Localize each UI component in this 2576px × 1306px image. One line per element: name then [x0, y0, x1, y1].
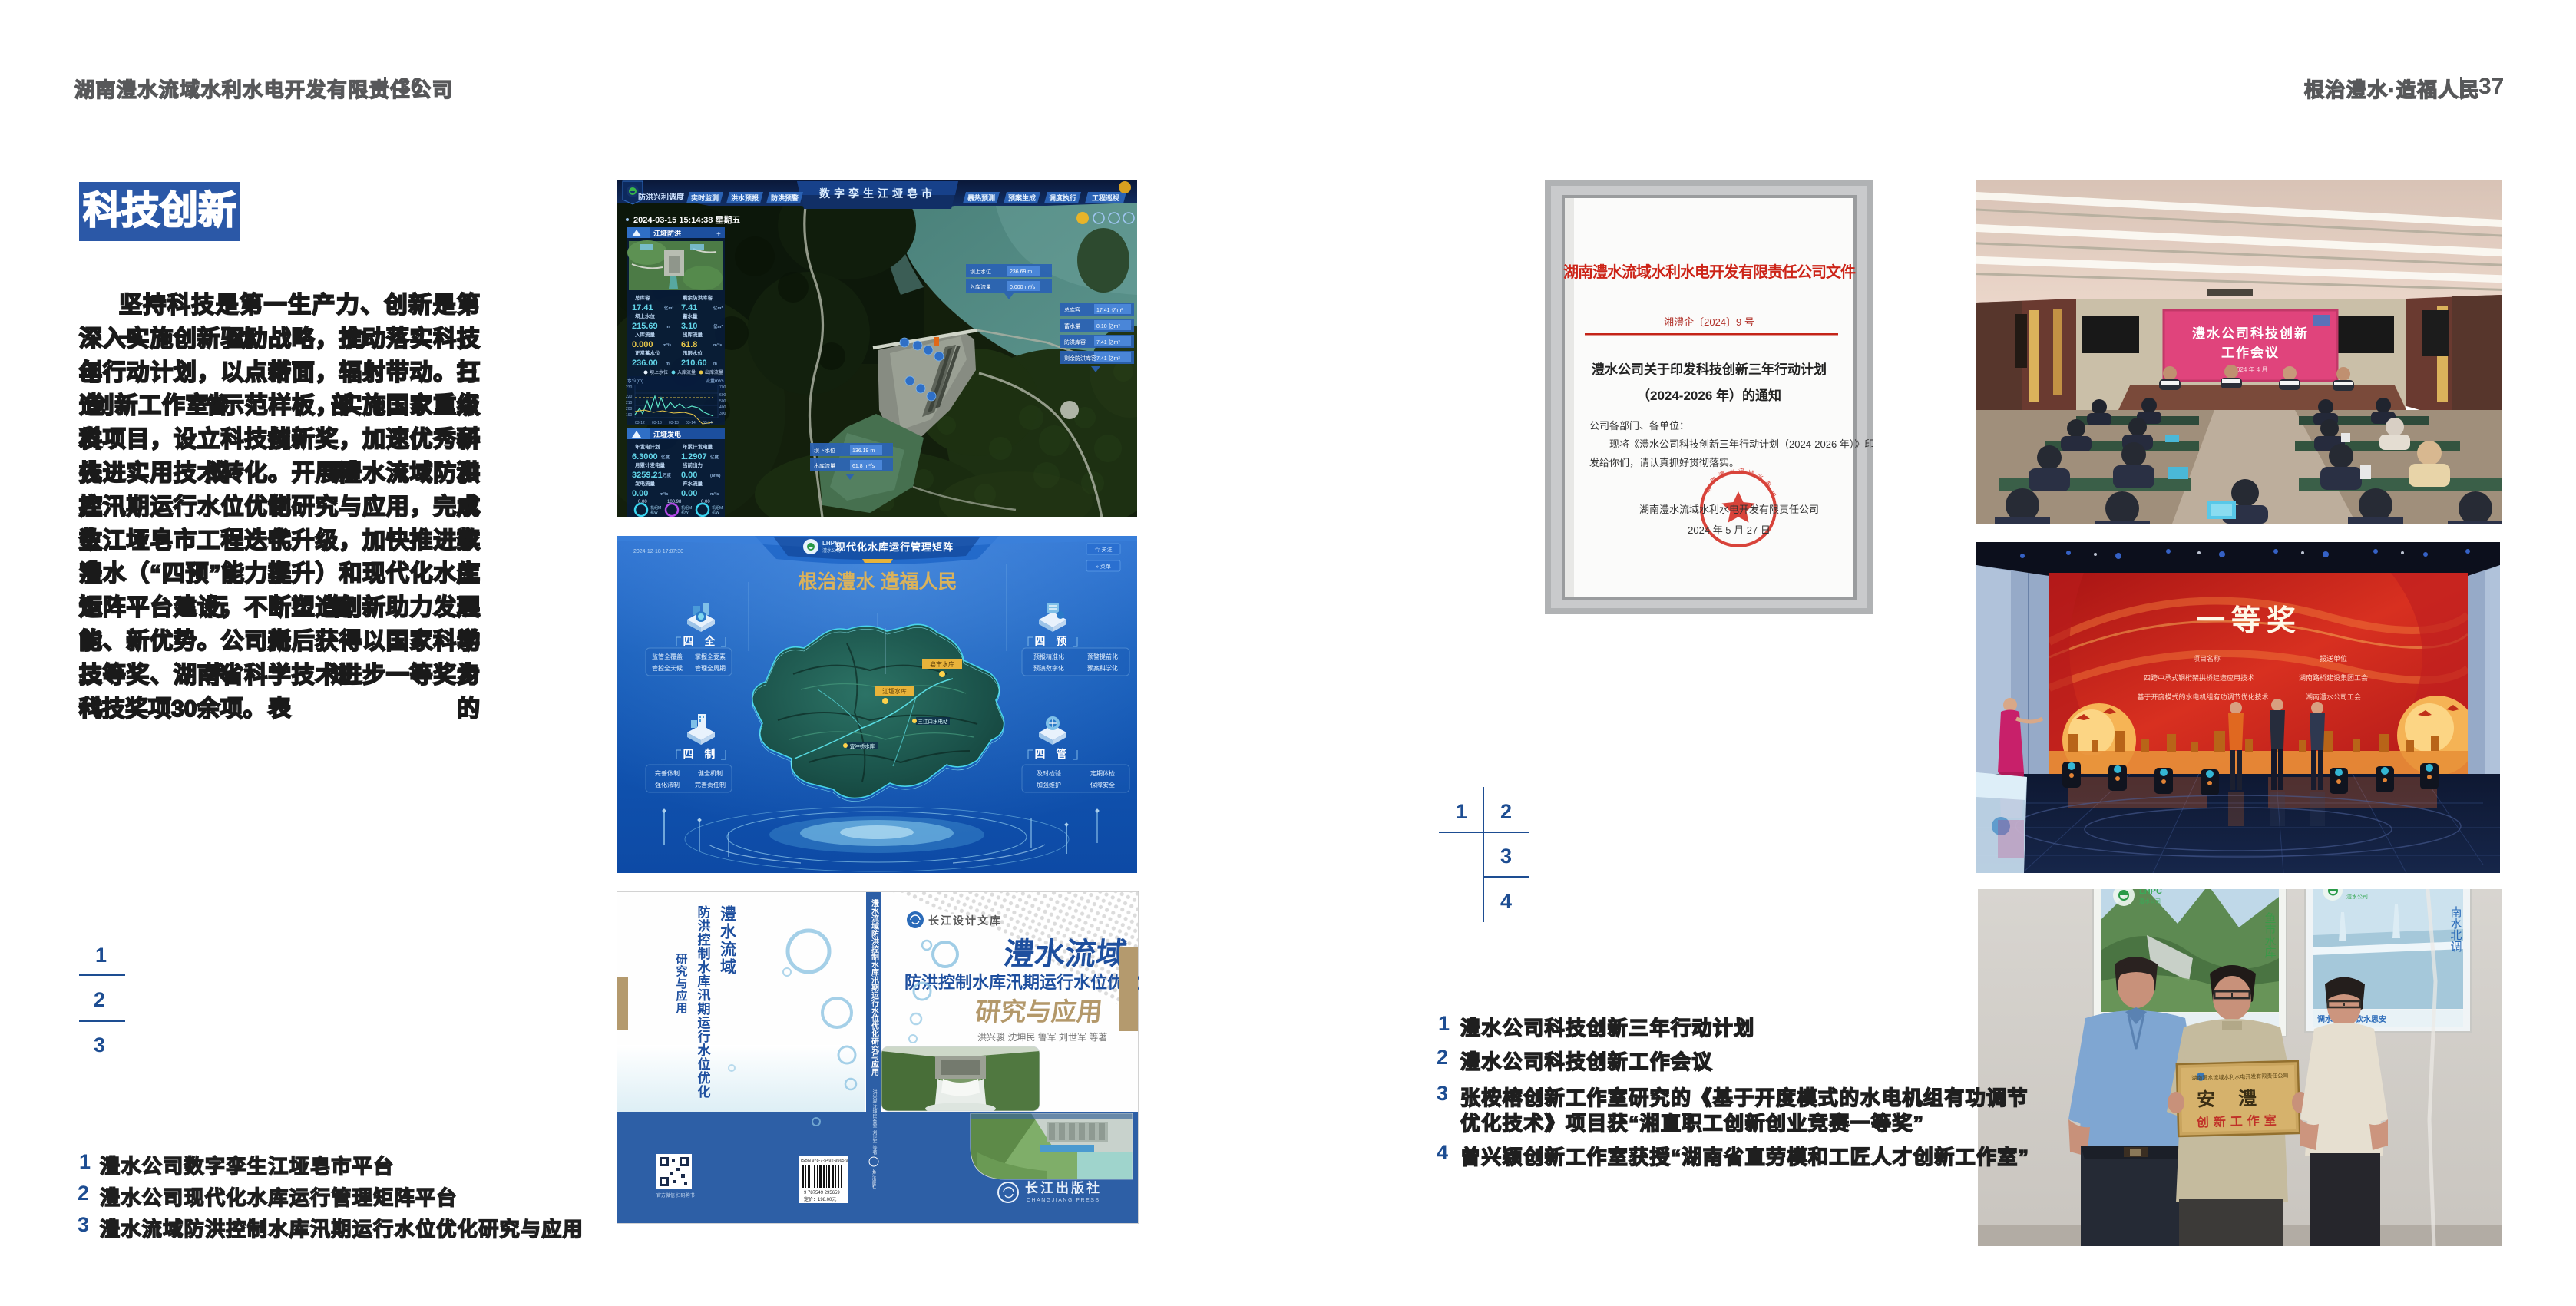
svg-text:» 菜单: » 菜单: [1096, 563, 1111, 570]
svg-text:预报精准化: 预报精准化: [1033, 653, 1064, 660]
svg-text:m: m: [666, 362, 670, 366]
svg-text:坝上水位: 坝上水位: [970, 268, 991, 275]
svg-text:万度: 万度: [662, 472, 672, 478]
svg-text:入库流量: 入库流量: [970, 283, 991, 290]
svg-text:一等奖: 一等奖: [2196, 605, 2302, 637]
svg-text:m³/s: m³/s: [663, 342, 671, 348]
svg-text:3.10: 3.10: [681, 322, 697, 331]
svg-text:预案生成: 预案生成: [1008, 193, 1036, 202]
svg-text:亿m³: 亿m³: [713, 305, 723, 311]
svg-text:230: 230: [626, 385, 633, 390]
svg-text:（2024-2026 年）的通知: （2024-2026 年）的通知: [1637, 388, 1781, 403]
svg-text:流: 流: [1738, 467, 1744, 474]
svg-text:江垭发电: 江垭发电: [653, 430, 681, 438]
svg-text:三江口水电站: 三江口水电站: [918, 718, 949, 725]
svg-text:澧水公司: 澧水公司: [2139, 898, 2161, 904]
svg-text:LHPC: LHPC: [2346, 889, 2369, 891]
svg-text:实时监测: 实时监测: [691, 193, 719, 202]
svg-text:公司各部门、各单位：: 公司各部门、各单位：: [1589, 420, 1689, 431]
svg-text:项目名称: 项目名称: [2193, 654, 2221, 663]
svg-text:17.41: 17.41: [632, 303, 653, 312]
svg-text:年发电计划: 年发电计划: [635, 443, 660, 450]
svg-text:m³/s: m³/s: [713, 342, 722, 348]
svg-text:CHANGJIANG PRESS: CHANGJIANG PRESS: [1027, 1198, 1100, 1203]
svg-text:210.60: 210.60: [681, 359, 707, 368]
svg-text:长江设计文库: 长江设计文库: [928, 914, 1002, 927]
svg-text:南水北调: 南水北调: [2449, 906, 2462, 953]
svg-text:管理全周期: 管理全周期: [695, 664, 726, 672]
svg-text:坝上水位: 坝上水位: [650, 369, 668, 375]
svg-text:236.00: 236.00: [632, 359, 658, 368]
svg-text:湖南澧水流域水利水电开发有限责任公司: 湖南澧水流域水利水电开发有限责任公司: [1639, 504, 1819, 515]
svg-text:总库容: 总库容: [635, 294, 650, 301]
svg-text:当前出力: 当前出力: [683, 461, 703, 468]
svg-text:剩余防洪库容: 剩余防洪库容: [683, 294, 713, 301]
svg-text:皂市水库: 皂市水库: [930, 660, 954, 668]
svg-text:215.69: 215.69: [632, 322, 658, 331]
svg-text:完善责任制: 完善责任制: [695, 781, 726, 789]
svg-text:研究与应用: 研究与应用: [974, 997, 1104, 1027]
svg-text:调度执行: 调度执行: [1049, 193, 1076, 202]
svg-text:蓄水量: 蓄水量: [683, 312, 698, 319]
svg-text:8.10 亿m³: 8.10 亿m³: [1096, 322, 1120, 329]
svg-text:2024-03-15 15:14:38 星期五: 2024-03-15 15:14:38 星期五: [633, 214, 740, 225]
svg-text:机W: 机W: [650, 510, 658, 515]
svg-text:400: 400: [719, 405, 726, 410]
svg-text:加强维护: 加强维护: [1037, 781, 1061, 789]
svg-text:61.8: 61.8: [681, 340, 697, 349]
svg-text:四 管: 四 管: [1035, 748, 1071, 760]
svg-text:亿度: 亿度: [661, 454, 670, 460]
svg-text:监管全覆盖: 监管全覆盖: [652, 653, 683, 660]
svg-text:03-12: 03-12: [635, 421, 645, 425]
svg-text:(MW): (MW): [710, 474, 721, 478]
svg-text:m³/s: m³/s: [660, 491, 668, 497]
svg-text:7.41 亿m³: 7.41 亿m³: [1096, 339, 1120, 346]
svg-text:200: 200: [626, 407, 633, 412]
svg-text:2024-12-18 17:07:30: 2024-12-18 17:07:30: [633, 549, 683, 554]
svg-text:四跨中承式钢桁架拱桥建造应用技术: 四跨中承式钢桁架拱桥建造应用技术: [2144, 673, 2254, 682]
svg-text:03-14: 03-14: [686, 421, 696, 425]
svg-text:管控全天候: 管控全天候: [652, 664, 683, 672]
svg-text:入库流量: 入库流量: [677, 369, 696, 375]
svg-text:汛限水位: 汛限水位: [683, 349, 703, 356]
svg-text:官方微信 扫码购书: 官方微信 扫码购书: [656, 1192, 695, 1199]
svg-text:鱼市水库: 鱼市水库: [2264, 911, 2277, 958]
svg-text:洪兴骏 沈坤民 鲁军 刘世军 等著: 洪兴骏 沈坤民 鲁军 刘世军 等著: [977, 1031, 1107, 1043]
svg-text:0.000 m³/s: 0.000 m³/s: [1010, 285, 1036, 290]
svg-text:190: 190: [626, 413, 633, 418]
svg-text:掌握全要素: 掌握全要素: [695, 653, 726, 660]
svg-text:机W: 机W: [712, 510, 719, 515]
svg-text:年累计发电量: 年累计发电量: [683, 443, 713, 450]
svg-text:宜冲桥水库: 宜冲桥水库: [850, 742, 875, 749]
svg-text:健全机制: 健全机制: [698, 769, 723, 777]
svg-text:基于开度模式的水电机组有功调节优化技术: 基于开度模式的水电机组有功调节优化技术: [2137, 693, 2268, 701]
svg-text:澧水公司科技创新: 澧水公司科技创新: [2192, 326, 2309, 341]
svg-text:机W: 机W: [681, 510, 689, 515]
svg-text:现将《澧水公司科技创新三年行动计划（2024-2026 年）: 现将《澧水公司科技创新三年行动计划（2024-2026 年）》印: [1609, 438, 1873, 450]
svg-text:数字孪生江垭皂市: 数字孪生江垭皂市: [819, 187, 936, 200]
svg-text:61.8 m³/s: 61.8 m³/s: [852, 464, 875, 469]
svg-text:完善体制: 完善体制: [655, 769, 680, 777]
svg-text:江垭防洪: 江垭防洪: [653, 229, 681, 237]
svg-text:6.3000: 6.3000: [632, 452, 658, 461]
svg-text:四 预: 四 预: [1035, 635, 1071, 647]
svg-text:月累计发电量: 月累计发电量: [634, 461, 666, 468]
svg-text:澧水流域: 澧水流域: [1002, 937, 1129, 971]
svg-text:03-13: 03-13: [652, 421, 662, 425]
svg-text:坝上水位: 坝上水位: [635, 312, 656, 319]
svg-text:澧水公司关于印发科技创新三年行动计划: 澧水公司关于印发科技创新三年行动计划: [1592, 362, 1827, 377]
svg-text:长江出版社: 长江出版社: [871, 1169, 876, 1189]
svg-text:600: 600: [719, 393, 726, 398]
svg-text:1.2907: 1.2907: [681, 452, 707, 461]
svg-text:弃水流量: 弃水流量: [682, 480, 703, 487]
svg-text:防洪库容: 防洪库容: [1064, 339, 1086, 346]
svg-text:湖南澧水流域水利水电开发有限责任公司文件: 湖南澧水流域水利水电开发有限责任公司文件: [1563, 263, 1856, 281]
svg-text:坝下水位: 坝下水位: [814, 447, 835, 454]
svg-text:机组M: 机组M: [650, 505, 661, 511]
svg-text:出库流量: 出库流量: [683, 331, 703, 338]
svg-text:安澧: 安澧: [2197, 1087, 2280, 1111]
svg-text:m³/s: m³/s: [710, 491, 719, 497]
svg-text:暴热预测: 暴热预测: [967, 193, 995, 202]
svg-text:03-14: 03-14: [703, 421, 713, 425]
svg-text:湖南澧水公司工会: 湖南澧水公司工会: [2306, 693, 2361, 701]
svg-text:防洪预警: 防洪预警: [771, 193, 799, 202]
svg-text:3259.21: 3259.21: [632, 471, 663, 480]
svg-text:0.000: 0.000: [632, 340, 653, 349]
svg-text:+: +: [716, 230, 721, 239]
svg-text:根治澧水 造福人民: 根治澧水 造福人民: [799, 570, 957, 593]
svg-text:定期体检: 定期体检: [1090, 769, 1115, 777]
svg-text:机组M: 机组M: [681, 505, 692, 511]
svg-text:300: 300: [719, 412, 726, 416]
svg-text:流量m³/s: 流量m³/s: [706, 378, 724, 384]
svg-text:m: m: [713, 362, 717, 366]
svg-text:LHPC: LHPC: [2139, 889, 2162, 896]
svg-text:9 787549 295659: 9 787549 295659: [804, 1191, 840, 1195]
svg-text:出库流量: 出库流量: [705, 369, 723, 375]
svg-text:长江出版社: 长江出版社: [1025, 1180, 1102, 1195]
svg-text:ISBN 978-7-5492-9565-9: ISBN 978-7-5492-9565-9: [801, 1159, 848, 1163]
svg-text:17.41 亿m³: 17.41 亿m³: [1096, 306, 1123, 313]
svg-text:洪兴骏 沈坤民 鲁军 刘世军 等著: 洪兴骏 沈坤民 鲁军 刘世军 等著: [871, 1089, 877, 1156]
svg-text:总库容: 总库容: [1064, 306, 1080, 313]
svg-text:四 全: 四 全: [683, 635, 719, 647]
svg-text:防洪控制水库汛期运行水位优化: 防洪控制水库汛期运行水位优化: [696, 904, 712, 1099]
svg-text:澧水公司: 澧水公司: [2346, 893, 2368, 900]
svg-text:防洪兴利调度: 防洪兴利调度: [638, 192, 685, 202]
svg-text:出库流量: 出库流量: [814, 462, 835, 469]
svg-text:发给你们，请认真抓好贯彻落实。: 发给你们，请认真抓好贯彻落实。: [1589, 457, 1739, 468]
svg-text:报送单位: 报送单位: [2320, 654, 2347, 663]
svg-text:0.00: 0.00: [681, 489, 697, 498]
svg-text:m: m: [666, 325, 670, 329]
svg-text:700: 700: [719, 385, 726, 390]
svg-text:7.41: 7.41: [681, 303, 697, 312]
svg-text:210: 210: [626, 401, 633, 405]
svg-text:0.00: 0.00: [681, 471, 697, 480]
svg-text:澧水流域: 澧水流域: [719, 905, 737, 976]
svg-text:7.41 亿m³: 7.41 亿m³: [1096, 355, 1120, 362]
svg-text:洪水预报: 洪水预报: [731, 193, 759, 202]
svg-text:现代化水库运行管理矩阵: 现代化水库运行管理矩阵: [835, 541, 954, 553]
svg-text:机组M: 机组M: [712, 505, 723, 511]
svg-text:亿m³: 亿m³: [664, 305, 673, 311]
svg-text:工作会议: 工作会议: [2221, 345, 2280, 360]
svg-text:水位(m): 水位(m): [627, 378, 643, 384]
svg-text:江垭水库: 江垭水库: [882, 687, 907, 695]
svg-text:正常蓄水位: 正常蓄水位: [635, 349, 660, 356]
svg-text:定价：198.00元: 定价：198.00元: [804, 1196, 836, 1202]
svg-text:亿m³: 亿m³: [713, 323, 723, 329]
svg-text:强化法制: 强化法制: [655, 781, 680, 789]
svg-text:220: 220: [626, 395, 633, 399]
svg-text:湘澧企〔2024〕9 号: 湘澧企〔2024〕9 号: [1664, 316, 1754, 328]
svg-text:0.00: 0.00: [632, 489, 648, 498]
svg-text:2024 年 5 月 27 日: 2024 年 5 月 27 日: [1688, 524, 1771, 536]
svg-text:研究与应用: 研究与应用: [675, 953, 688, 1014]
svg-text:防洪控制水库汛期运行水位优化: 防洪控制水库汛期运行水位优化: [904, 973, 1139, 992]
svg-text:预演数字化: 预演数字化: [1033, 664, 1064, 672]
svg-text:入库流量: 入库流量: [634, 331, 656, 338]
svg-text:及时检验: 及时检验: [1037, 769, 1061, 777]
svg-text:500: 500: [719, 399, 726, 404]
svg-text:预案科学化: 预案科学化: [1087, 664, 1118, 672]
svg-text:湖南路桥建设集团工会: 湖南路桥建设集团工会: [2299, 673, 2368, 682]
svg-text:03-13: 03-13: [669, 421, 679, 425]
svg-text:四 制: 四 制: [683, 748, 719, 760]
svg-text:工程巡视: 工程巡视: [1092, 193, 1119, 202]
svg-text:剩余防洪库容: 剩余防洪库容: [1064, 355, 1096, 362]
svg-text:2024 年 4 月: 2024 年 4 月: [2234, 365, 2268, 373]
svg-text:☆ 关注: ☆ 关注: [1095, 546, 1113, 553]
svg-text:保障安全: 保障安全: [1090, 781, 1115, 789]
svg-text:蓄水量: 蓄水量: [1064, 322, 1080, 329]
svg-text:236.69 m: 236.69 m: [1010, 269, 1032, 275]
svg-text:预警提前化: 预警提前化: [1087, 653, 1118, 660]
svg-text:136.19 m: 136.19 m: [852, 448, 875, 454]
svg-text:发电流量: 发电流量: [634, 480, 656, 487]
svg-text:亿度: 亿度: [710, 454, 719, 460]
